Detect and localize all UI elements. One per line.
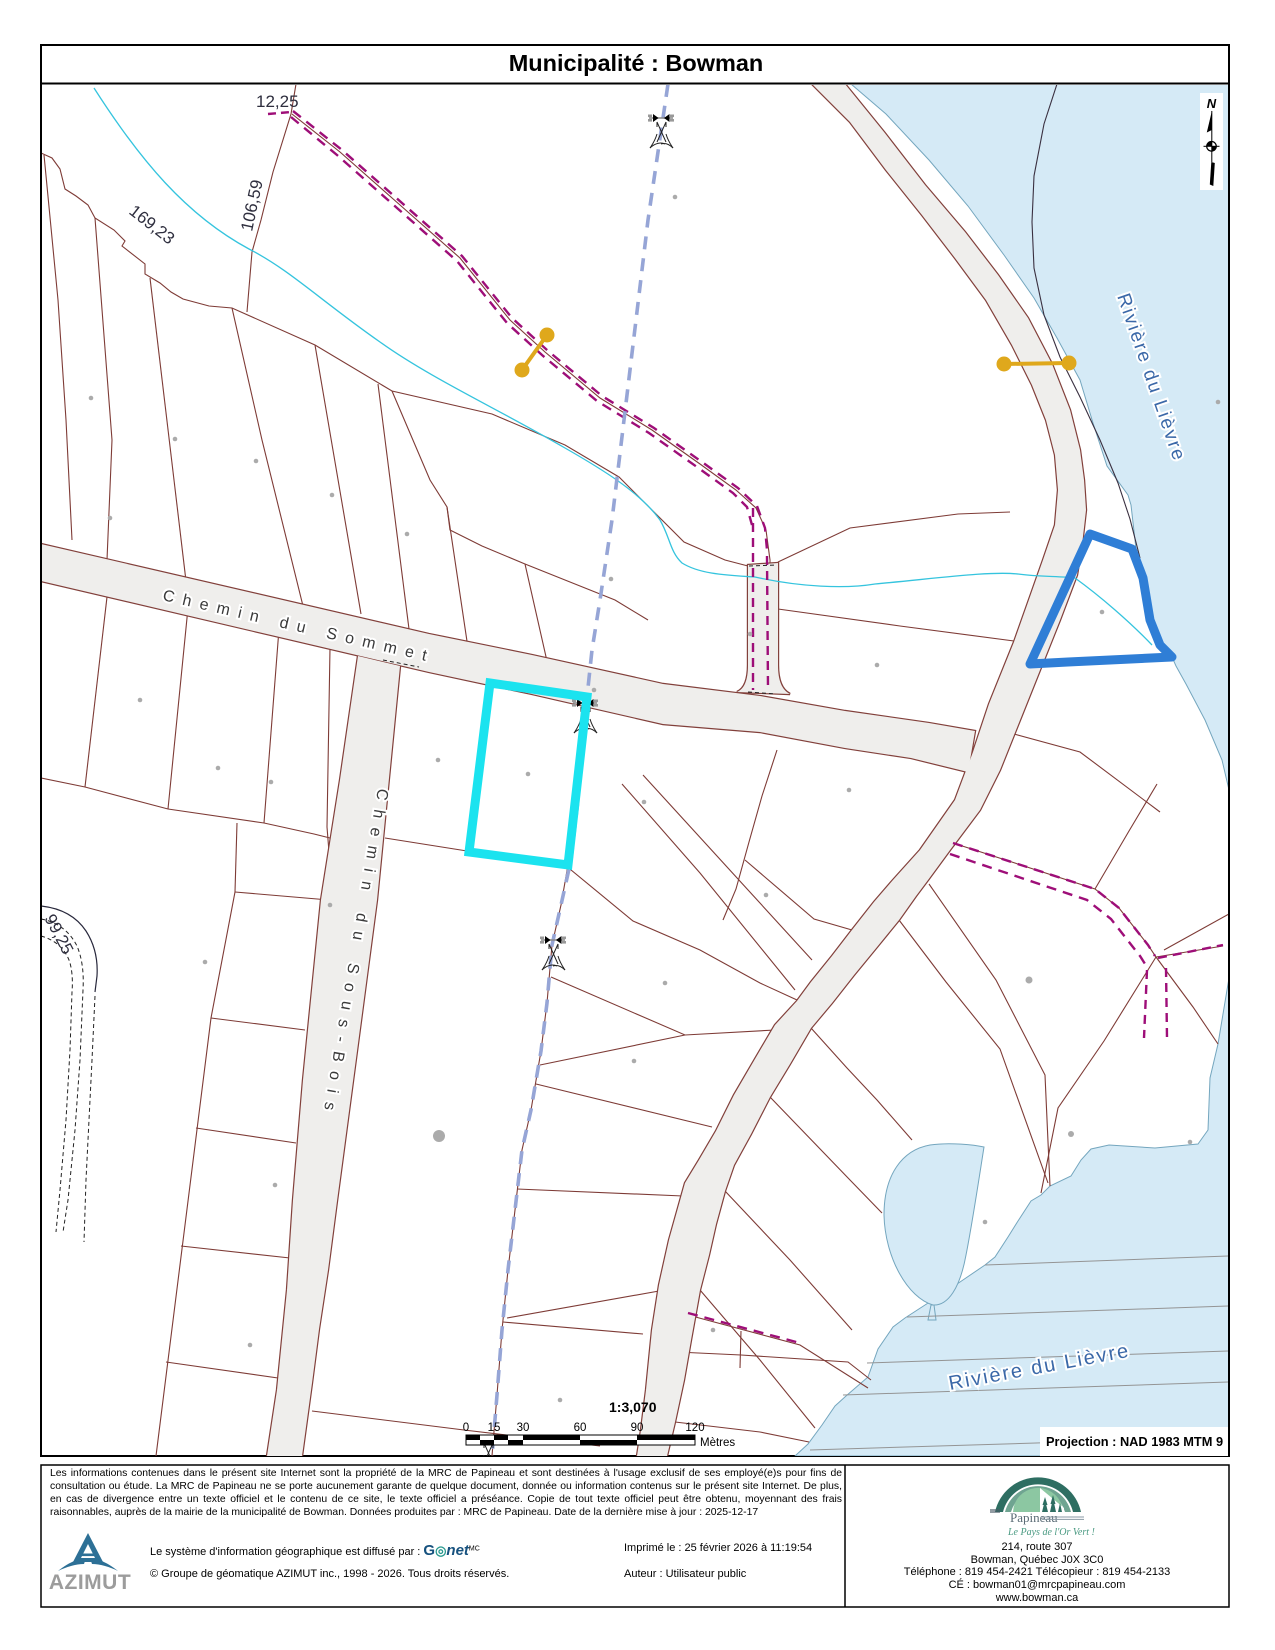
svg-text:120: 120 [685,1422,704,1434]
svg-text:Projection : NAD 1983 MTM 9: Projection : NAD 1983 MTM 9 [1046,1434,1223,1449]
svg-text:30: 30 [517,1422,530,1434]
svg-text:1:3,070: 1:3,070 [609,1399,657,1415]
svg-text:N: N [1207,96,1217,111]
svg-text:Municipalité : Bowman: Municipalité : Bowman [509,50,764,76]
svg-text:15: 15 [488,1422,501,1434]
svg-text:90: 90 [631,1422,644,1434]
svg-text:0: 0 [463,1422,469,1434]
svg-text:AZIMUT: AZIMUT [49,1571,131,1594]
svg-text:Le Pays de l'Or Vert !: Le Pays de l'Or Vert ! [1007,1527,1095,1538]
svg-text:12,25: 12,25 [256,92,299,111]
svg-text:Mètres: Mètres [700,1437,735,1449]
svg-text:60: 60 [574,1422,587,1434]
